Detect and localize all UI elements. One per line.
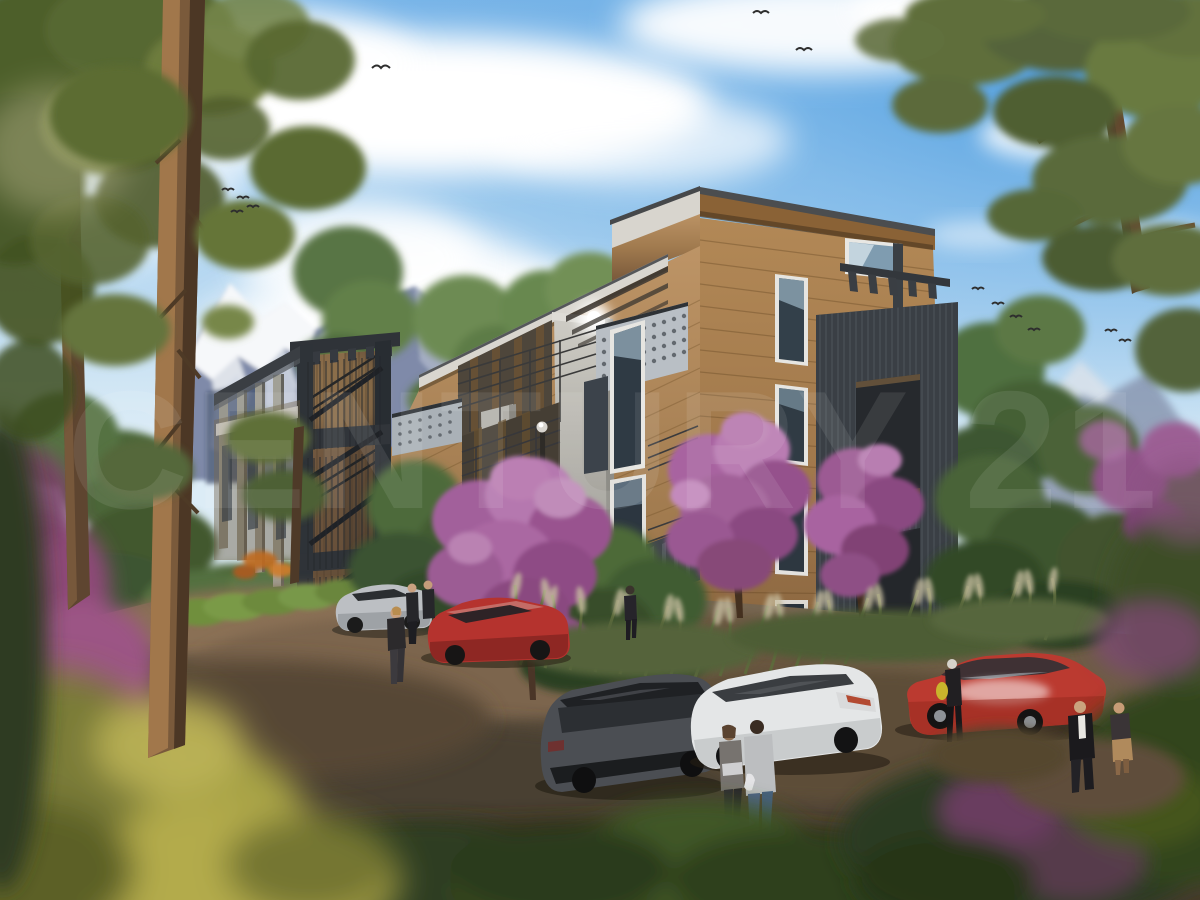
svg-text:CENTURY 21: CENTURY 21 bbox=[67, 356, 1163, 544]
